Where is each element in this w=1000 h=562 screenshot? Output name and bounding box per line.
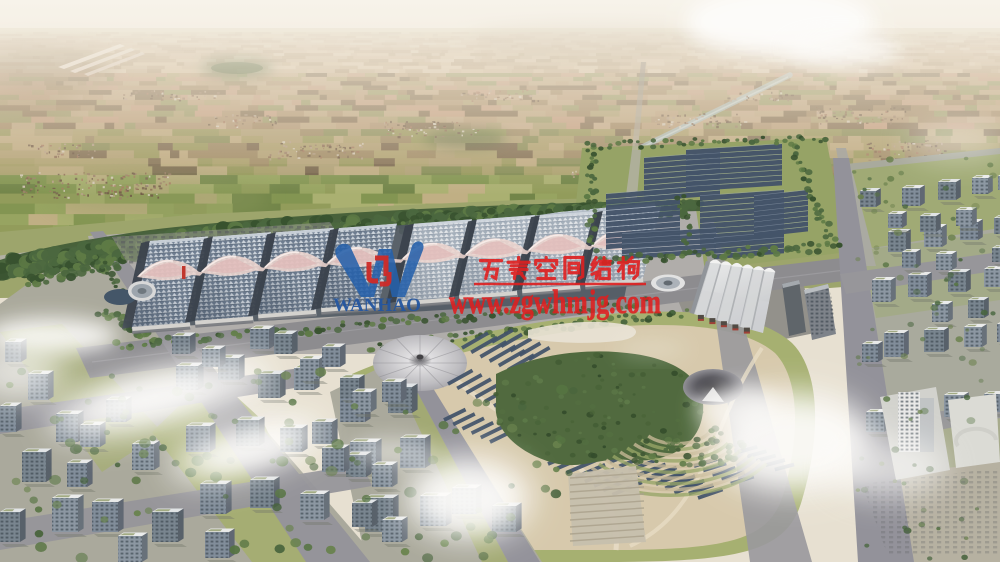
svg-text:WANHAO: WANHAO xyxy=(333,295,421,316)
svg-text:www.zgwhmjg.com: www.zgwhmjg.com xyxy=(449,284,661,321)
